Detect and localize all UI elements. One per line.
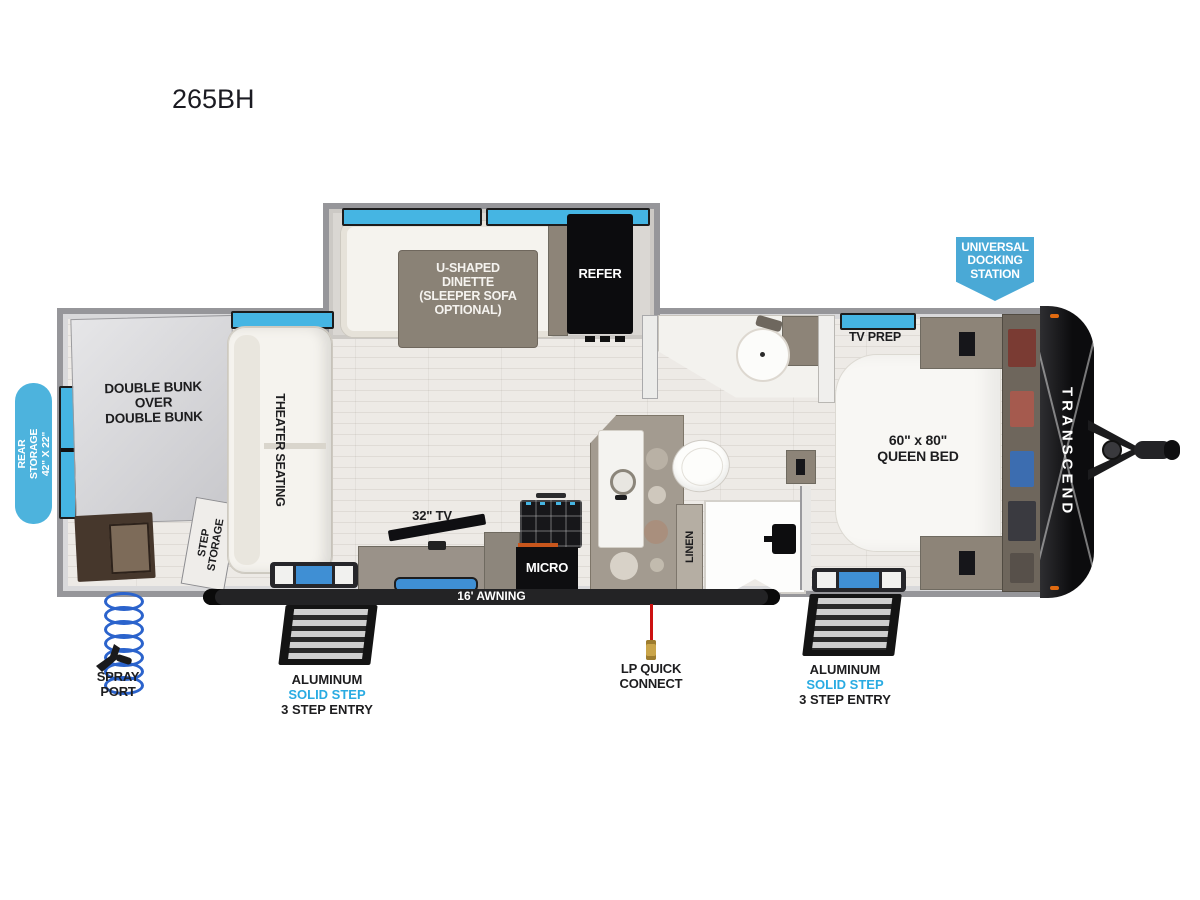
docking-station-label: UNIVERSAL DOCKING STATION (956, 237, 1034, 281)
refrigerator-label: REFER (578, 267, 621, 282)
bath-wall (642, 315, 658, 399)
counter-canister (646, 448, 668, 470)
brand-text: TRANSCEND (1059, 387, 1076, 517)
refrigerator-feet (600, 336, 610, 342)
entry-mat-right (812, 568, 906, 592)
page-title: 265BH (172, 84, 255, 115)
stove (520, 500, 582, 548)
tv-prep-label: TV PREP (836, 330, 914, 344)
kitchen-sink (598, 430, 644, 548)
wardrobe (1002, 314, 1044, 592)
bath-bed-wall (800, 486, 811, 590)
lp-connect-line (650, 604, 653, 641)
steps-left (278, 605, 377, 665)
step-storage-label: STEP STORAGE (194, 516, 227, 572)
nightstand-top (920, 317, 1004, 369)
lp-connect-label: LP QUICK CONNECT (597, 662, 705, 691)
kitchen-module (484, 532, 520, 590)
nightstand-bottom (920, 536, 1004, 590)
dinette-label: U-SHAPED DINETTE (SLEEPER SOFA OPTIONAL) (399, 261, 537, 317)
front-cap: TRANSCEND (1040, 306, 1094, 598)
rear-storage-callout: REAR STORAGE 42" X 22" (15, 383, 52, 524)
steps-left-line3: 3 STEP ENTRY (272, 702, 382, 717)
refrigerator: REFER (567, 214, 633, 334)
refrigerator-feet (585, 336, 595, 342)
tv-stand (428, 541, 446, 550)
steps-right-line3: 3 STEP ENTRY (790, 692, 900, 707)
spray-port-label: SPRAY PORT (86, 670, 150, 699)
linen-cabinet: LINEN (676, 504, 703, 590)
docking-station-callout: UNIVERSAL DOCKING STATION (956, 237, 1034, 301)
hitch (1088, 414, 1182, 486)
rear-storage-label: REAR STORAGE 42" X 22" (15, 428, 51, 478)
microwave-label: MICRO (526, 561, 568, 576)
storage-cabinet (74, 512, 155, 582)
queen-bed-label: 60" x 80" QUEEN BED (848, 433, 988, 464)
awning-bar: 16' AWNING (203, 589, 780, 605)
dinette-table: U-SHAPED DINETTE (SLEEPER SOFA OPTIONAL) (398, 250, 538, 348)
bath-sink (736, 328, 790, 382)
bunk-bed: DOUBLE BUNK OVER DOUBLE BUNK (70, 315, 237, 524)
entry-mat-left (270, 562, 358, 588)
awning-label: 16' AWNING (457, 590, 525, 603)
pocket-wall (818, 315, 835, 403)
steps-right-line1: ALUMINUM (790, 662, 900, 677)
bunk-label: DOUBLE BUNK OVER DOUBLE BUNK (73, 378, 234, 428)
microwave: MICRO (516, 547, 578, 590)
counter-canister (644, 520, 668, 544)
foot-cabinet (786, 450, 816, 484)
queen-bed: 60" x 80" QUEEN BED (835, 354, 1001, 552)
dinette-divider (548, 218, 568, 336)
counter-canister (650, 558, 664, 572)
theater-seating: THEATER SEATING (227, 326, 333, 574)
dinette-window-left-icon (342, 208, 482, 226)
lp-connect-fitting (646, 640, 656, 660)
theater-seating-label: THEATER SEATING (273, 393, 287, 506)
steps-left-label: ALUMINUM SOLID STEP 3 STEP ENTRY (272, 672, 382, 717)
steps-left-line2: SOLID STEP (272, 687, 382, 702)
steps-left-line1: ALUMINUM (272, 672, 382, 687)
counter-canister (610, 552, 638, 580)
bedroom-window-icon (840, 313, 916, 330)
refrigerator-feet (615, 336, 625, 342)
linen-label: LINEN (684, 531, 696, 563)
steps-right-line2: SOLID STEP (790, 677, 900, 692)
floorplan-265bh: 265BH U-SHAPED DINETTE (SLEEPER SOFA OPT… (0, 0, 1200, 900)
steps-right (802, 594, 902, 656)
steps-right-label: ALUMINUM SOLID STEP 3 STEP ENTRY (790, 662, 900, 707)
counter-canister (648, 486, 666, 504)
